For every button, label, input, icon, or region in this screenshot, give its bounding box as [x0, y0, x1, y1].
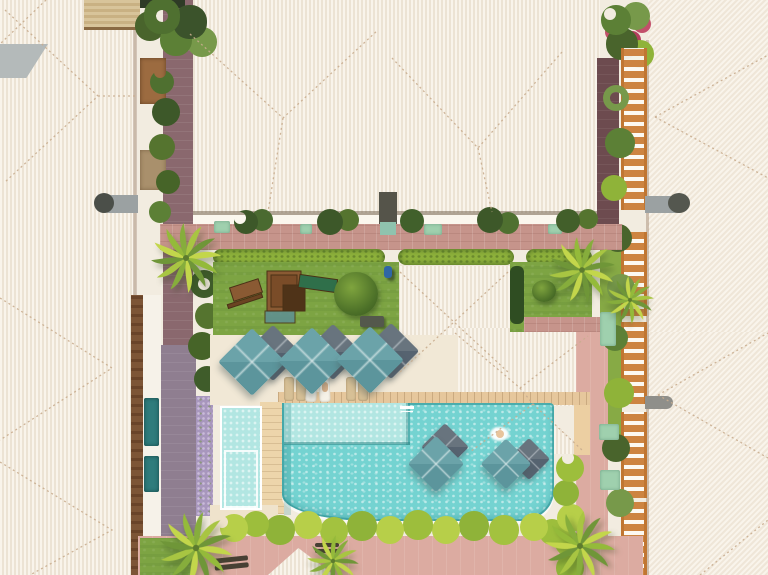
swimmer — [496, 430, 504, 438]
pool-handrail — [400, 406, 414, 409]
round-tree — [334, 272, 378, 316]
bougainvillea — [604, 8, 616, 20]
top-gap-trees — [156, 10, 168, 22]
plunge-pool — [144, 398, 159, 446]
thatch-hut-roof — [84, 0, 140, 30]
path-clubhouse-side — [524, 317, 600, 332]
building-gap-shadow — [379, 192, 397, 224]
pergola-segment — [621, 48, 647, 210]
pool-ledge — [406, 403, 410, 445]
pergola-plants — [610, 92, 622, 104]
mint-mat — [380, 222, 396, 235]
sun-lounger — [284, 377, 294, 401]
top-gap-shadow — [137, 0, 185, 8]
pool-step-edge — [284, 442, 410, 445]
pergola-segment — [621, 322, 647, 404]
mint-mat — [424, 224, 442, 235]
mint-mat — [599, 424, 619, 440]
wood-deck-lower — [140, 150, 166, 190]
path-right-upper — [597, 58, 619, 228]
kids-pool-frame — [224, 450, 258, 508]
roof-right-upper — [648, 0, 768, 332]
palm-tree — [148, 220, 224, 296]
deck-between-pools — [260, 402, 284, 514]
plunge-pool — [144, 456, 159, 492]
roof-left-row — [0, 0, 137, 575]
aerial-resort-photo — [0, 0, 768, 575]
roof-corner-piece — [0, 0, 46, 46]
roof-top-block — [183, 0, 600, 213]
sand-deck-right — [574, 400, 590, 455]
sun-lounger — [346, 377, 356, 401]
walkway-shade — [668, 193, 690, 213]
pergola-segment — [621, 412, 647, 498]
palm-tree — [294, 522, 373, 575]
dark-hedge-strip — [510, 266, 524, 324]
person-on-lawn — [384, 266, 392, 278]
pool-right-hedge — [562, 452, 574, 464]
walkway-shade — [94, 193, 114, 213]
pool-shallow-shelf — [284, 403, 408, 444]
entry-walkway — [645, 396, 673, 409]
wood-wall-left — [131, 295, 143, 575]
corridor-bushes-left — [154, 66, 166, 78]
mint-mat — [600, 470, 620, 490]
facade-bush-row — [234, 212, 246, 224]
hedge-row — [398, 249, 514, 265]
mint-mat — [300, 224, 312, 234]
roof-right-lower — [648, 332, 768, 575]
pool-lap-lane — [284, 403, 291, 515]
lavender-border — [196, 396, 213, 516]
wood-deck-upper — [140, 58, 166, 104]
planter-box — [360, 316, 384, 327]
